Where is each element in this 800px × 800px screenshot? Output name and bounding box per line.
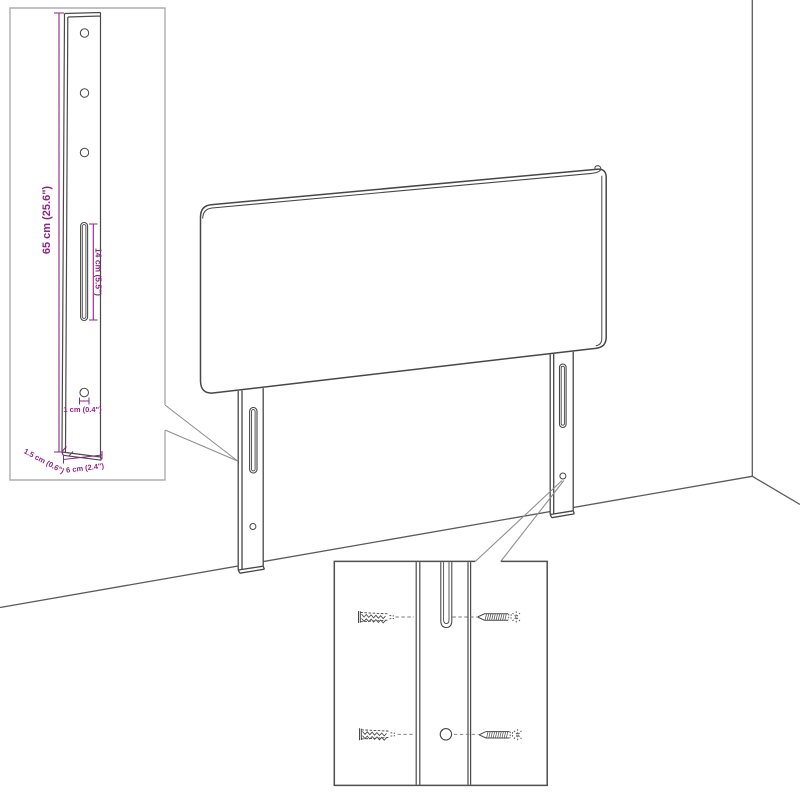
leader-line	[501, 481, 564, 562]
dim-height-label: 65 cm (25.6")	[41, 186, 53, 255]
leader-line	[165, 430, 238, 461]
mounting-detail-inset	[334, 561, 547, 785]
leg-detail-leader-lines	[165, 405, 238, 461]
headboard-panel	[201, 166, 607, 393]
right-leg-slot	[560, 364, 567, 428]
floor-edge-line	[752, 476, 800, 504]
headboard-left-leg	[238, 388, 264, 573]
leader-line	[475, 481, 562, 562]
headboard-assembly-diagram: 65 cm (25.6") 14 cm (5.5") 1 cm (0.4") 6…	[0, 0, 800, 800]
dim-slot-label: 14 cm (5.5")	[94, 248, 104, 296]
leader-line	[165, 405, 238, 461]
left-leg-slot	[250, 408, 257, 474]
panel-outline	[201, 169, 607, 393]
leg-detail-inset: 65 cm (25.6") 14 cm (5.5") 1 cm (0.4") 6…	[10, 8, 165, 480]
dim-hole-label: 1 cm (0.4")	[63, 405, 102, 414]
